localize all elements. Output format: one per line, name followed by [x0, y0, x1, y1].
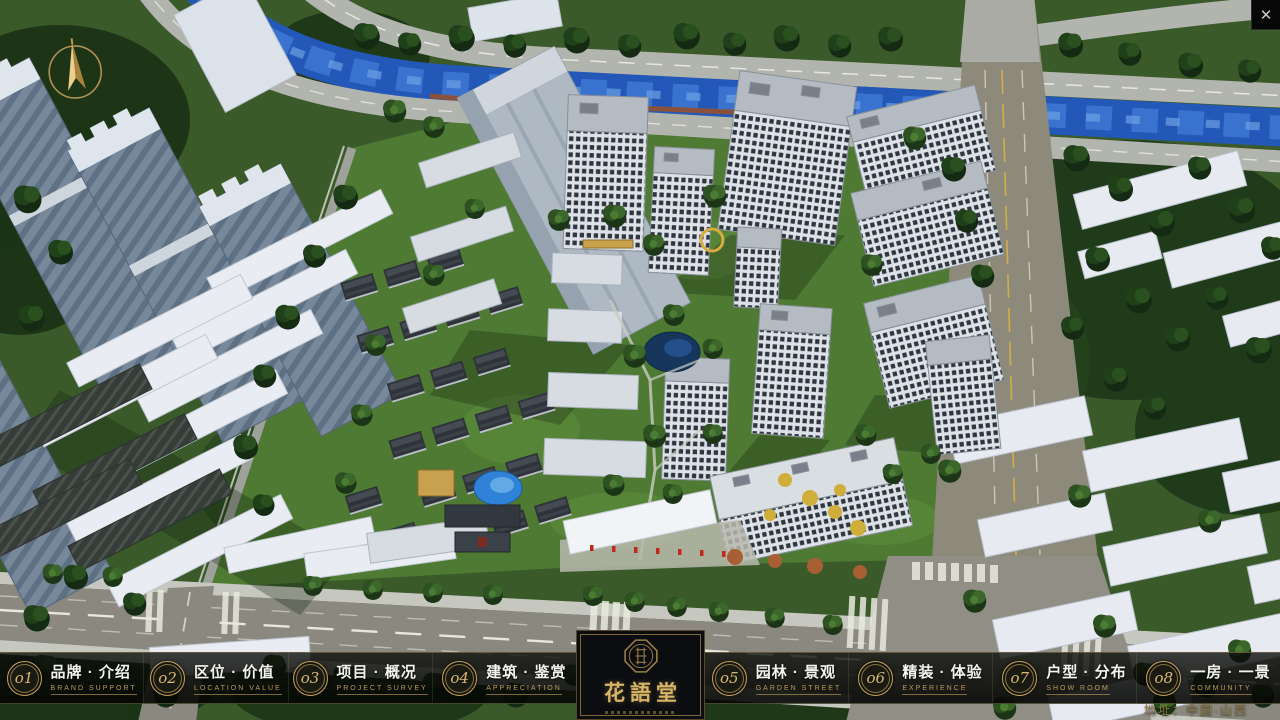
bottom-nav-left: o1 品牌 · 介绍 BRAND SUPPORT o2 区位 · 价值 LOCA… [0, 652, 576, 704]
project-logo-panel: 花語堂 [576, 630, 705, 720]
project-logo-title: 花語堂 [599, 677, 682, 707]
nav-title: 项目 · 概况 [337, 661, 417, 682]
nav-badge-icon: o4 [442, 661, 477, 696]
nav-item-architecture[interactable]: o4 建筑 · 鉴赏 APPRECIATION [433, 653, 576, 703]
nav-badge-icon: o3 [293, 661, 328, 696]
nav-subtitle: APPRECIATION [486, 685, 562, 695]
nav-badge-icon: o6 [858, 661, 893, 696]
nav-subtitle: BRAND SUPPORT [51, 685, 137, 695]
compass-icon [38, 28, 112, 108]
nav-subtitle: EXPERIENCE [902, 685, 967, 695]
close-button[interactable]: ✕ [1251, 0, 1280, 30]
nav-subtitle: GARDEN STREET [756, 685, 842, 695]
nav-badge-icon: o1 [7, 661, 42, 696]
nav-item-floorplan[interactable]: o7 户型 · 分布 SHOW ROOM [993, 653, 1137, 703]
nav-title: 一房 · 一景 [1190, 661, 1270, 682]
nav-title: 园林 · 景观 [756, 661, 836, 682]
nav-badge-icon: o5 [712, 661, 747, 696]
nav-subtitle: SHOW ROOM [1046, 685, 1110, 695]
nav-title: 户型 · 分布 [1046, 661, 1126, 682]
nav-badge-icon: o2 [150, 661, 185, 696]
nav-title: 精装 · 体验 [902, 661, 982, 682]
project-address: 地址：中国·山西 [1144, 701, 1248, 718]
bottom-nav-right: o5 园林 · 景观 GARDEN STREET o6 精装 · 体验 EXPE… [705, 652, 1280, 704]
nav-item-location[interactable]: o2 区位 · 价值 LOCATION VALUE [144, 653, 288, 703]
close-icon: ✕ [1260, 6, 1273, 24]
nav-title: 区位 · 价值 [194, 661, 274, 682]
seal-emblem-icon [623, 638, 659, 674]
nav-item-garden[interactable]: o5 园林 · 景观 GARDEN STREET [705, 653, 849, 703]
sales-app-window: ✕ o1 品牌 · 介绍 BRAND SUPPORT o2 区位 · 价值 LO… [0, 0, 1280, 720]
nav-badge-icon: o8 [1146, 661, 1181, 696]
site-plan-render [0, 0, 1280, 720]
nav-title: 品牌 · 介绍 [51, 661, 131, 682]
nav-subtitle: LOCATION VALUE [194, 685, 282, 695]
nav-badge-icon: o7 [1002, 661, 1037, 696]
nav-item-views[interactable]: o8 一房 · 一景 COMMUNITY [1137, 653, 1280, 703]
nav-title: 建筑 · 鉴赏 [486, 661, 566, 682]
nav-item-project[interactable]: o3 项目 · 概况 PROJECT SURVEY [289, 653, 433, 703]
nav-item-interior[interactable]: o6 精装 · 体验 EXPERIENCE [849, 653, 993, 703]
nav-subtitle: PROJECT SURVEY [337, 685, 428, 695]
nav-subtitle: COMMUNITY [1190, 685, 1251, 695]
project-logo-tagline [605, 711, 677, 714]
nav-item-brand[interactable]: o1 品牌 · 介绍 BRAND SUPPORT [0, 653, 144, 703]
